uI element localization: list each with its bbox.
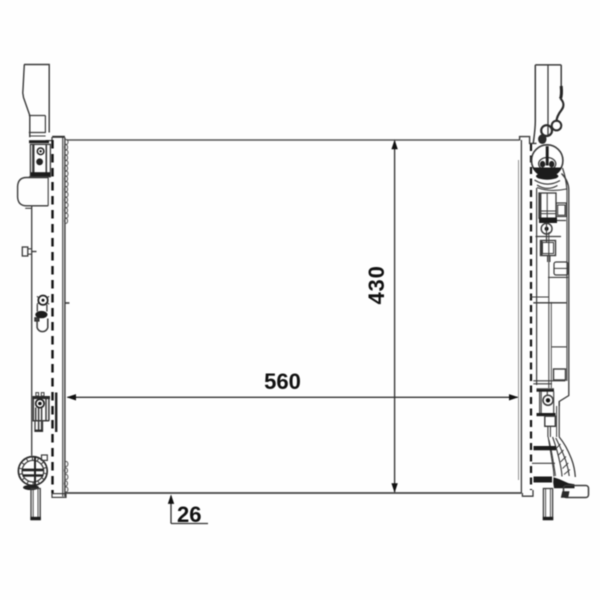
svg-text:430: 430 — [364, 265, 389, 304]
svg-text:26: 26 — [177, 502, 201, 527]
svg-text:560: 560 — [264, 369, 301, 394]
